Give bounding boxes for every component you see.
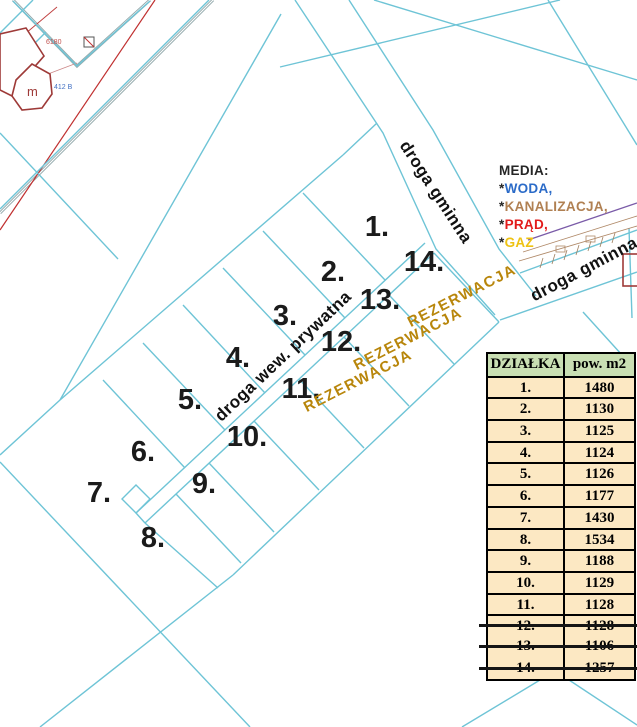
road-label-gminna-top: droga gminna (396, 137, 476, 247)
plot-area-cell: 1129 (565, 573, 634, 593)
parcel-no-small-label: 6180 (46, 39, 62, 46)
media-legend: MEDIA: *WODA,*KANALIZACJA,*PRĄD,*GAZ (499, 162, 608, 252)
table-row-5.: 5.1126 (488, 462, 634, 484)
media-item-label: GAZ (505, 235, 534, 250)
plot-label-6: 6. (131, 436, 155, 468)
plot-label-9: 9. (192, 468, 216, 500)
plot-area-cell: 1130 (565, 399, 634, 419)
plot-number-cell: 2. (488, 399, 565, 419)
plot-area-cell: 1480 (565, 378, 634, 398)
plot-number-cell: 6. (488, 486, 565, 506)
table-row-7.: 7.1430 (488, 506, 634, 528)
cadastral-map: m 412 B 6180 droga gminna droga gminna d… (0, 0, 637, 727)
strikethrough-bar (479, 667, 637, 670)
plot-area-cell: 1124 (565, 443, 634, 463)
plot-label-4: 4. (226, 342, 250, 374)
table-row-1.: 1.1480 (488, 376, 634, 398)
media-legend-items: *WODA,*KANALIZACJA,*PRĄD,*GAZ (499, 180, 608, 252)
table-row-2.: 2.1130 (488, 397, 634, 419)
plot-label-14: 14. (404, 246, 444, 278)
media-item-0: *WODA, (499, 180, 608, 198)
media-legend-title: MEDIA: (499, 162, 608, 180)
plot-label-7: 7. (87, 477, 111, 509)
media-item-2: *PRĄD, (499, 216, 608, 234)
plot-number-cell: 7. (488, 508, 565, 528)
table-row-4.: 4.1124 (488, 441, 634, 463)
plot-label-13: 13. (360, 284, 400, 316)
plots-table-header-plot: DZIAŁKA (488, 354, 565, 376)
media-item-3: *GAZ (499, 234, 608, 252)
table-row-9.: 9.1188 (488, 549, 634, 571)
plots-table-header: DZIAŁKA pow. m2 (488, 354, 634, 376)
plots-table-header-area: pow. m2 (565, 354, 634, 376)
table-row-6.: 6.1177 (488, 484, 634, 506)
plot-area-cell: 1534 (565, 530, 634, 550)
plot-number-cell: 1. (488, 378, 565, 398)
strikethrough-bar (479, 645, 637, 648)
table-row-10.: 10.1129 (488, 571, 634, 593)
media-item-label: KANALIZACJA, (505, 199, 608, 214)
strikethrough-bar (479, 624, 637, 627)
plot-label-2: 2. (321, 256, 345, 288)
plot-label-10: 10. (227, 421, 267, 453)
plot-number-cell: 10. (488, 573, 565, 593)
plot-number-cell: 9. (488, 551, 565, 571)
plot-number-cell: 11. (488, 595, 565, 615)
plot-area-cell: 1128 (565, 595, 634, 615)
plot-area-cell: 1430 (565, 508, 634, 528)
plot-label-8: 8. (141, 522, 165, 554)
media-item-1: *KANALIZACJA, (499, 198, 608, 216)
plot-number-cell: 5. (488, 464, 565, 484)
plot-number-cell: 8. (488, 530, 565, 550)
plot-area-cell: 1125 (565, 421, 634, 441)
media-item-label: WODA, (505, 181, 553, 196)
plot-label-5: 5. (178, 384, 202, 416)
plot-area-cell: 1126 (565, 464, 634, 484)
plot-label-1: 1. (365, 211, 389, 243)
plot-ref-small-label: 412 B (54, 84, 73, 91)
plot-number-cell: 4. (488, 443, 565, 463)
building-m-label: m (27, 84, 38, 99)
plot-area-cell: 1177 (565, 486, 634, 506)
plot-label-3: 3. (273, 300, 297, 332)
plot-label-12: 12. (321, 326, 361, 358)
media-item-label: PRĄD, (505, 217, 549, 232)
table-row-8.: 8.1534 (488, 528, 634, 550)
table-row-3.: 3.1125 (488, 419, 634, 441)
plot-number-cell: 3. (488, 421, 565, 441)
table-row-11.: 11.1128 (488, 593, 634, 615)
plots-table: DZIAŁKA pow. m2 1.14802.11303.11254.1124… (486, 352, 636, 681)
plot-area-cell: 1188 (565, 551, 634, 571)
